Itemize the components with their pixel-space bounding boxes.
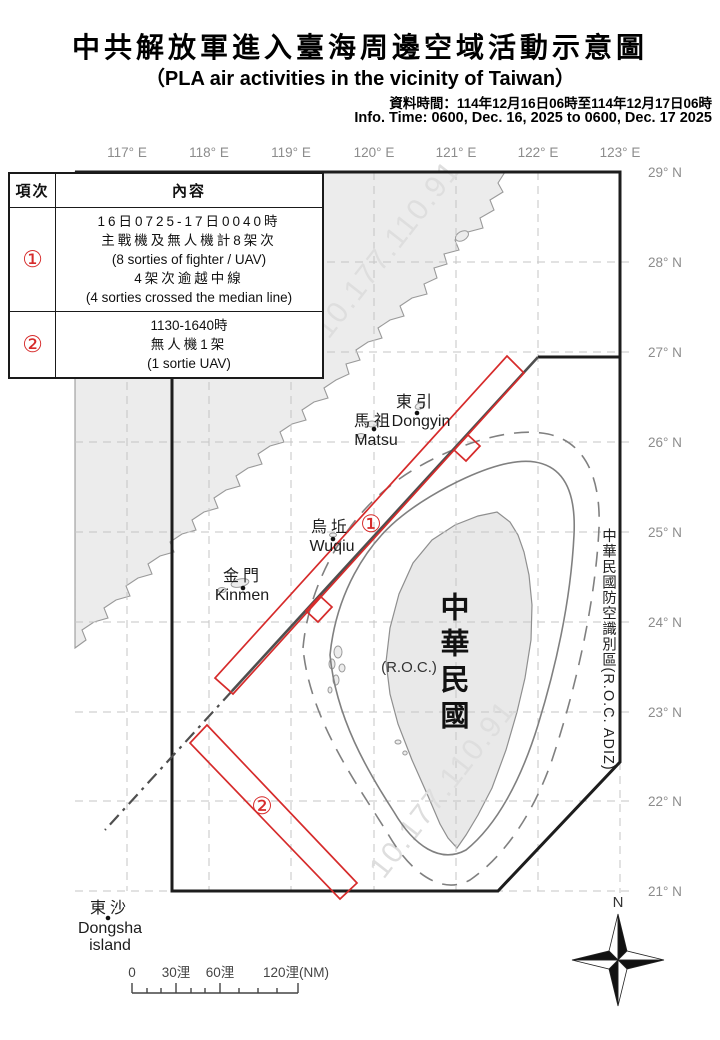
scale-bar-labels: 0 30浬 60浬 120浬(NM) [128, 965, 329, 980]
wuqiu-label-zh: 烏坵 [311, 518, 351, 536]
table-row2-content: 1130-1640時 無人機1架 (1 sortie UAV) [56, 312, 322, 377]
activity-marker-1: ① [360, 511, 382, 538]
activity-marker-2: ② [251, 793, 273, 820]
page-title-zh: 中共解放軍進入臺海周邊空域活動示意圖 [0, 26, 720, 66]
scale-label-30: 30浬 [162, 965, 191, 980]
row1-line1: 16日0725-17日0040時 [97, 212, 280, 231]
lat-label: 23° N [648, 705, 682, 720]
scale-bar [132, 983, 298, 993]
lon-label: 122° E [518, 145, 559, 160]
row1-line5: (4 sorties crossed the median line) [86, 288, 292, 307]
scale-label-60: 60浬 [206, 965, 235, 980]
lon-label: 123° E [600, 145, 641, 160]
row1-line2: 主戰機及無人機計8架次 [101, 231, 277, 250]
lat-label: 26° N [648, 435, 682, 450]
dongyin-label-en: Dongyin [392, 413, 451, 430]
table-header-content: 內容 [56, 174, 322, 208]
lon-label: 121° E [436, 145, 477, 160]
scale-label-120: 120浬(NM) [263, 965, 329, 980]
lat-label: 24° N [648, 615, 682, 630]
row2-line1: 1130-1640時 [150, 316, 227, 335]
matsu-label-en: Matsu [354, 432, 398, 449]
dongsha-label-en1: Dongsha [78, 920, 142, 937]
row1-line3: (8 sorties of fighter / UAV) [112, 250, 266, 269]
lat-label: 28° N [648, 255, 682, 270]
lon-label: 120° E [354, 145, 395, 160]
lat-label: 21° N [648, 884, 682, 899]
row2-line3: (1 sortie UAV) [147, 354, 231, 373]
activity-band-2 [190, 725, 357, 899]
lat-label: 27° N [648, 345, 682, 360]
lon-label: 119° E [271, 145, 311, 160]
page: { "header": { "title_zh": "中共解放軍進入臺海周邊空域… [0, 0, 720, 1040]
row1-line4: 4架次逾越中線 [134, 269, 244, 288]
taiwan-label-en: (R.O.C.) [381, 659, 437, 676]
table-header-item: 項次 [10, 174, 56, 208]
scale-label-0: 0 [128, 965, 136, 980]
table-row2-number: ② [10, 312, 56, 377]
wuqiu-label-en: Wuqiu [309, 538, 354, 555]
dongsha-label-zh: 東沙 [90, 899, 130, 917]
latitude-labels: 29° N 28° N 27° N 26° N 25° N 24° N 23° … [648, 165, 682, 899]
activity-table: 項次 內容 ① 16日0725-17日0040時 主戰機及無人機計8架次 (8 … [8, 172, 324, 379]
table-row1-number: ① [10, 208, 56, 312]
compass-rose [572, 914, 664, 1006]
info-time-en: Info. Time: 0600, Dec. 16, 2025 to 0600,… [354, 110, 712, 126]
kinmen-label-en: Kinmen [215, 587, 269, 604]
table-row1-content: 16日0725-17日0040時 主戰機及無人機計8架次 (8 sorties … [56, 208, 322, 312]
info-time-zh: 資料時間：114年12月16日06時至114年12月17日06時 [389, 92, 712, 112]
lat-label: 25° N [648, 525, 682, 540]
longitude-labels: 117° E 118° E 119° E 120° E 121° E 122° … [107, 145, 640, 160]
matsu-label-zh: 馬祖 [354, 412, 394, 430]
taiwan-label-zh: 中華民國 [436, 592, 469, 736]
row2-line2: 無人機1架 [151, 335, 228, 354]
lat-label: 22° N [648, 794, 682, 809]
dongsha-label-en2: island [89, 937, 131, 954]
page-title-en: （PLA air activities in the vicinity of T… [0, 62, 720, 91]
lon-label: 117° E [107, 145, 147, 160]
lat-label: 29° N [648, 165, 682, 180]
median-crossing-notch-1 [454, 435, 480, 461]
north-label: N [613, 894, 624, 911]
dongyin-label-zh: 東引 [396, 393, 436, 411]
kinmen-label-zh: 金門 [223, 567, 263, 585]
lon-label: 118° E [189, 145, 229, 160]
map-canvas: 10.177.110.91 10.177.110.91 ① ② 東引 Dongy… [0, 0, 720, 1040]
adiz-side-label: 中華民國防空識別區(R.O.C. ADIZ) [600, 528, 616, 771]
